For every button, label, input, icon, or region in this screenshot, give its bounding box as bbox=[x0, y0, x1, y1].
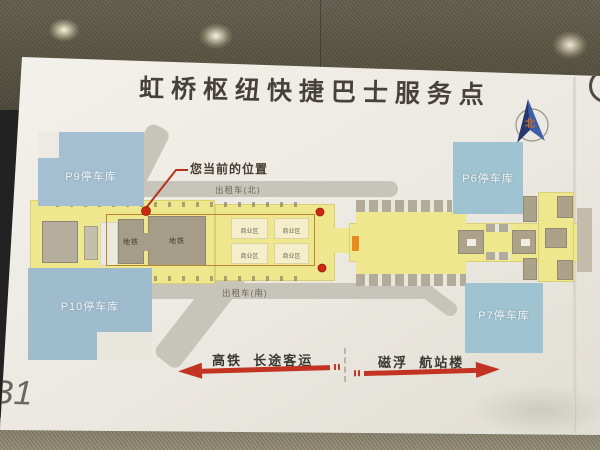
ceiling-seam bbox=[320, 0, 321, 70]
arrow-tick bbox=[358, 370, 360, 376]
current-location-dot bbox=[142, 207, 151, 216]
photo-scene: 虹桥枢纽快捷巴士服务点 北 bbox=[0, 0, 600, 450]
arrow-bar bbox=[364, 368, 476, 376]
arrow-left-icon bbox=[178, 363, 202, 380]
taxi-north-label: 出租车(北) bbox=[215, 184, 261, 196]
taxi-south-label: 出租车(南) bbox=[222, 287, 268, 299]
floor-level-label: B1 bbox=[0, 373, 33, 413]
arrow-tick bbox=[338, 364, 340, 370]
arrow-right-icon bbox=[476, 361, 500, 378]
arrow-tick bbox=[354, 370, 356, 376]
arrow-tick bbox=[334, 364, 336, 370]
arrow-bar bbox=[202, 365, 330, 374]
service-point-marker bbox=[352, 236, 359, 251]
map-marker-dot bbox=[316, 208, 324, 216]
current-location-label: 您当前的位置 bbox=[190, 160, 268, 177]
map-marker-dot bbox=[318, 264, 326, 272]
